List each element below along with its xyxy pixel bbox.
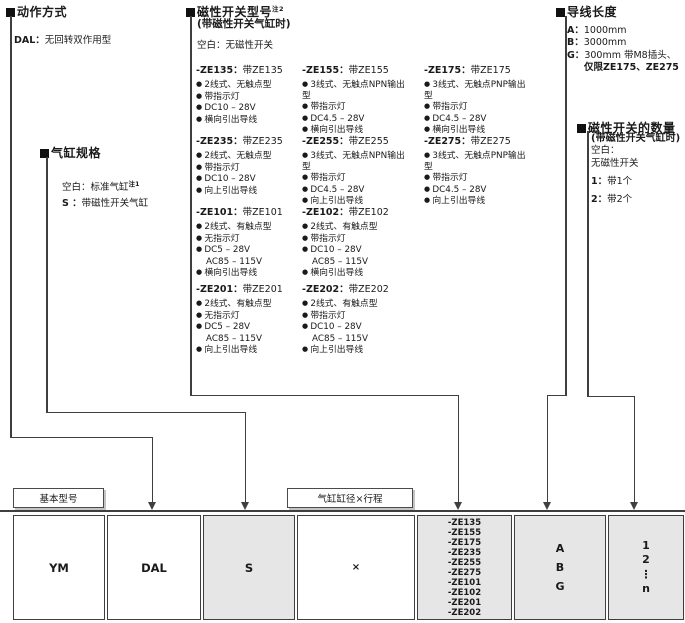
switch-block-header: -ZE175：带ZE175 <box>424 62 534 76</box>
switch-feature: 带指示灯 <box>196 162 306 174</box>
switch-feature: AC85 – 115V <box>196 256 306 268</box>
switch-feature: AC85 – 115V <box>302 256 412 268</box>
cell-line: ⋮ <box>641 568 652 583</box>
switch-block-header: -ZE255：带ZE255 <box>302 133 412 147</box>
switch-feature: 2线式、有触点型 <box>196 298 306 310</box>
cell-line: -ZE255 <box>448 558 481 568</box>
switch-feature: 向上引出导线 <box>302 344 412 356</box>
switch-feature: 2线式、无触点型 <box>196 79 306 91</box>
switch-block-ze175: -ZE175：带ZE1753线式、无触点PNP输出型带指示灯DC4.5 – 28… <box>424 62 534 136</box>
qty-item: 1：带1个 <box>591 176 680 188</box>
cell-line: n <box>642 582 650 597</box>
switch-feature: DC10 – 28V <box>302 321 412 333</box>
switch-feature: DC10 – 28V <box>196 173 306 185</box>
lead-item: G：300mm 带M8插头、 <box>567 50 679 62</box>
connector-lead-drop <box>547 395 548 503</box>
qty-item: 2：带2个 <box>591 194 680 206</box>
cell-line: -ZE235 <box>448 548 481 558</box>
cell-line: -ZE275 <box>448 568 481 578</box>
switch-feature: AC85 – 115V <box>302 333 412 345</box>
switch-default-note: 空白：无磁性开关 <box>197 40 273 52</box>
switch-feature: DC4.5 – 28V <box>424 184 534 196</box>
switch-feature: DC10 – 28V <box>196 102 306 114</box>
cell-line: -ZE135 <box>448 518 481 528</box>
switch-feature: 带指示灯 <box>424 172 534 184</box>
connector-qty-drop <box>634 396 635 503</box>
cell-line: -ZE175 <box>448 538 481 548</box>
switch-feature: 带指示灯 <box>302 101 412 113</box>
table-top-rule <box>0 510 685 512</box>
connector-spec-vertical <box>46 157 48 413</box>
connector-qty-horizontal <box>587 396 635 397</box>
switch-block-ze255: -ZE255：带ZE2553线式、无触点NPN输出型带指示灯DC4.5 – 28… <box>302 133 412 207</box>
switch-feature: 向上引出导线 <box>196 344 306 356</box>
lead-item-continuation: 仅限ZE175、ZE275 <box>567 62 679 74</box>
connector-lead-vertical <box>565 16 567 396</box>
arrow-down-icon <box>630 502 638 510</box>
model-cell-spec: S <box>203 515 295 620</box>
cell-line: -ZE202 <box>448 608 481 618</box>
model-cell-action: DAL <box>107 515 201 620</box>
arrow-down-icon <box>241 502 249 510</box>
cell-line: -ZE155 <box>448 528 481 538</box>
cell-line: × <box>352 562 360 573</box>
switch-feature: 横向引出导线 <box>196 267 306 279</box>
switch-feature: 2线式、无触点型 <box>196 150 306 162</box>
model-cell-switch-model: -ZE135-ZE155-ZE175-ZE235-ZE255-ZE275-ZE1… <box>417 515 512 620</box>
switch-block-header: -ZE235：带ZE235 <box>196 133 306 147</box>
action-section-title: 动作方式 <box>6 3 67 20</box>
qty-default-line: 空白： <box>591 145 680 157</box>
connector-action-vertical <box>10 16 12 438</box>
model-cell-bore-stroke: × <box>297 515 415 620</box>
switch-block-ze155: -ZE155：带ZE1553线式、无触点NPN输出型带指示灯DC4.5 – 28… <box>302 62 412 136</box>
cell-line: B <box>556 558 564 577</box>
switch-feature: 横向引出导线 <box>196 114 306 126</box>
switch-block-ze102: -ZE102：带ZE1022线式、有触点型带指示灯DC10 – 28VAC85 … <box>302 204 412 279</box>
switch-feature: 3线式、无触点PNP输出型 <box>424 79 534 101</box>
switch-feature: DC10 – 28V <box>302 244 412 256</box>
cell-line: A <box>556 539 565 558</box>
switch-block-ze201: -ZE201：带ZE2012线式、有触点型无指示灯DC5 – 28VAC85 –… <box>196 281 306 356</box>
switch-block-ze235: -ZE235：带ZE2352线式、无触点型带指示灯DC10 – 28V向上引出导… <box>196 133 306 196</box>
lead-item: B：3000mm <box>567 37 679 49</box>
arrow-down-icon <box>454 502 462 510</box>
switch-feature: 无指示灯 <box>196 233 306 245</box>
model-cell-base: YM <box>13 515 105 620</box>
model-cell-lead-length: ABG <box>514 515 606 620</box>
note-2-superscript: 注2 <box>272 5 284 13</box>
switch-block-header: -ZE102：带ZE102 <box>302 204 412 218</box>
spec-items: 空白：标准气缸注1 S ：带磁性开关气缸 <box>62 177 148 211</box>
switch-feature: DC5 – 28V <box>196 244 306 256</box>
cell-line: S <box>245 561 253 575</box>
cell-line: 2 <box>642 553 650 568</box>
spec-item: S ：带磁性开关气缸 <box>62 196 148 212</box>
switch-feature: 2线式、有触点型 <box>302 221 412 233</box>
spec-item: 空白：标准气缸注1 <box>62 177 148 196</box>
arrow-down-icon <box>148 502 156 510</box>
switch-feature: 3线式、无触点NPN输出型 <box>302 150 412 172</box>
switch-block-ze135: -ZE135：带ZE1352线式、无触点型带指示灯DC10 – 28V横向引出导… <box>196 62 306 125</box>
switch-feature: 带指示灯 <box>302 310 412 322</box>
switch-feature: 向上引出导线 <box>424 195 534 207</box>
cell-line: -ZE102 <box>448 588 481 598</box>
switch-feature: DC4.5 – 28V <box>302 184 412 196</box>
cell-line: YM <box>49 561 69 575</box>
switch-feature: 3线式、无触点PNP输出型 <box>424 150 534 172</box>
switch-feature: 无指示灯 <box>196 310 306 322</box>
square-bullet-icon <box>577 124 586 133</box>
ordering-code-diagram: 动作方式 DAL：无回转双作用型 气缸规格 空白：标准气缸注1 S ：带磁性开关… <box>0 0 685 623</box>
cell-line: -ZE101 <box>448 578 481 588</box>
switch-block-ze101: -ZE101：带ZE1012线式、有触点型无指示灯DC5 – 28VAC85 –… <box>196 204 306 279</box>
switch-feature: 带指示灯 <box>196 91 306 103</box>
switch-feature: AC85 – 115V <box>196 333 306 345</box>
switch-block-header: -ZE155：带ZE155 <box>302 62 412 76</box>
switch-feature: DC4.5 – 28V <box>424 113 534 125</box>
lead-item: A：1000mm <box>567 25 679 37</box>
switch-feature: DC5 – 28V <box>196 321 306 333</box>
switch-block-header: -ZE275：带ZE275 <box>424 133 534 147</box>
cell-line: 1 <box>642 539 650 554</box>
switch-block-header: -ZE202：带ZE202 <box>302 281 412 295</box>
basic-model-label: 基本型号 <box>13 488 104 508</box>
connector-switch-horizontal <box>190 395 459 396</box>
cell-line: -ZE201 <box>448 598 481 608</box>
connector-switch-vertical <box>190 16 192 396</box>
connector-action-drop <box>152 437 153 503</box>
switch-feature: 3线式、无触点NPN输出型 <box>302 79 412 101</box>
connector-lead-horizontal <box>547 395 566 396</box>
connector-spec-drop <box>245 412 246 503</box>
connector-switch-drop <box>458 395 459 503</box>
bore-stroke-label: 气缸缸径×行程 <box>287 488 413 508</box>
switch-feature: 带指示灯 <box>302 233 412 245</box>
switch-block-header: -ZE135：带ZE135 <box>196 62 306 76</box>
switch-feature: 2线式、有触点型 <box>302 298 412 310</box>
arrow-down-icon <box>543 502 551 510</box>
switch-block-ze275: -ZE275：带ZE2753线式、无触点PNP输出型带指示灯DC4.5 – 28… <box>424 133 534 207</box>
action-item: DAL：无回转双作用型 <box>14 35 111 47</box>
qty-subtitle: (带磁性开关气缸时) <box>591 133 680 145</box>
note-1-superscript: 注1 <box>129 180 140 188</box>
connector-qty-vertical <box>587 131 589 397</box>
switch-feature: DC4.5 – 28V <box>302 113 412 125</box>
switch-block-ze202: -ZE202：带ZE2022线式、有触点型带指示灯DC10 – 28VAC85 … <box>302 281 412 356</box>
switch-section-subtitle: (带磁性开关气缸时) <box>197 16 291 31</box>
connector-spec-horizontal <box>46 412 246 413</box>
cell-line: DAL <box>141 561 167 575</box>
cell-line: G <box>555 577 564 596</box>
lead-items: A：1000mm B：3000mm G：300mm 带M8插头、 仅限ZE175… <box>567 25 679 74</box>
switch-feature: 带指示灯 <box>302 172 412 184</box>
switch-feature: 2线式、有触点型 <box>196 221 306 233</box>
qty-body: (带磁性开关气缸时) 空白： 无磁性开关 1：带1个 2：带2个 <box>591 133 680 206</box>
switch-block-header: -ZE201：带ZE201 <box>196 281 306 295</box>
qty-default-line: 无磁性开关 <box>591 158 680 170</box>
spec-section-title: 气缸规格 <box>40 144 101 161</box>
switch-feature: 向上引出导线 <box>196 185 306 197</box>
switch-block-header: -ZE101：带ZE101 <box>196 204 306 218</box>
square-bullet-icon <box>556 8 565 17</box>
switch-feature: 横向引出导线 <box>302 267 412 279</box>
switch-feature: 带指示灯 <box>424 101 534 113</box>
connector-action-horizontal <box>10 437 153 438</box>
model-cell-switch-qty: 12⋮n <box>608 515 684 620</box>
